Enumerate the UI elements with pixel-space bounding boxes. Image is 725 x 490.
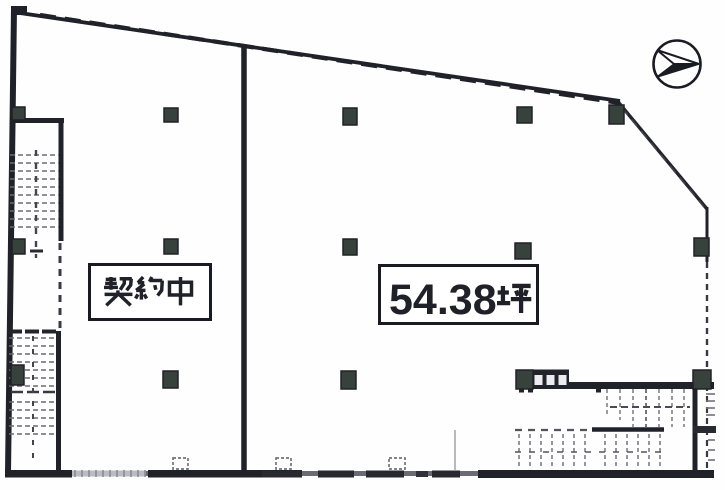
svg-text:54.38: 54.38: [389, 276, 497, 324]
